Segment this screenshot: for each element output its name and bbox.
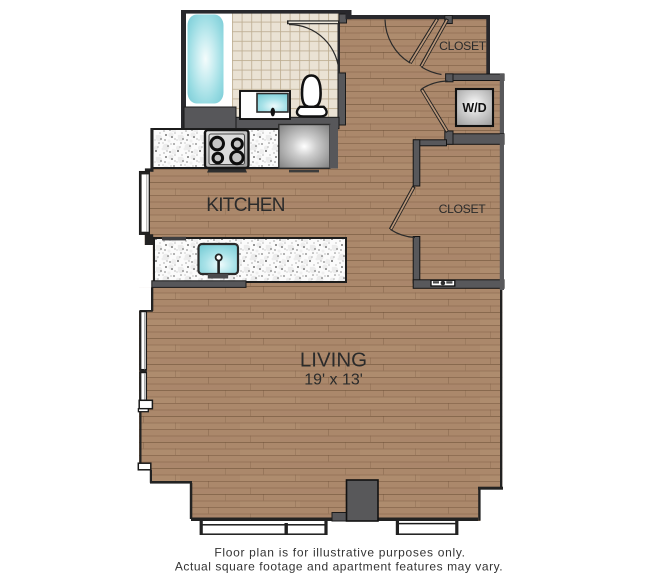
svg-text:LIVING: LIVING [300, 348, 367, 371]
svg-text:Floor plan is for illustrative: Floor plan is for illustrative purposes … [214, 546, 465, 560]
svg-text:KITCHEN: KITCHEN [206, 195, 285, 216]
svg-text:CLOSET: CLOSET [439, 202, 487, 216]
svg-text:Actual square footage and apar: Actual square footage and apartment feat… [175, 560, 503, 574]
svg-text:19' x 13': 19' x 13' [304, 372, 363, 389]
svg-text:CLOSET: CLOSET [439, 39, 487, 53]
svg-text:W/D: W/D [462, 101, 486, 115]
